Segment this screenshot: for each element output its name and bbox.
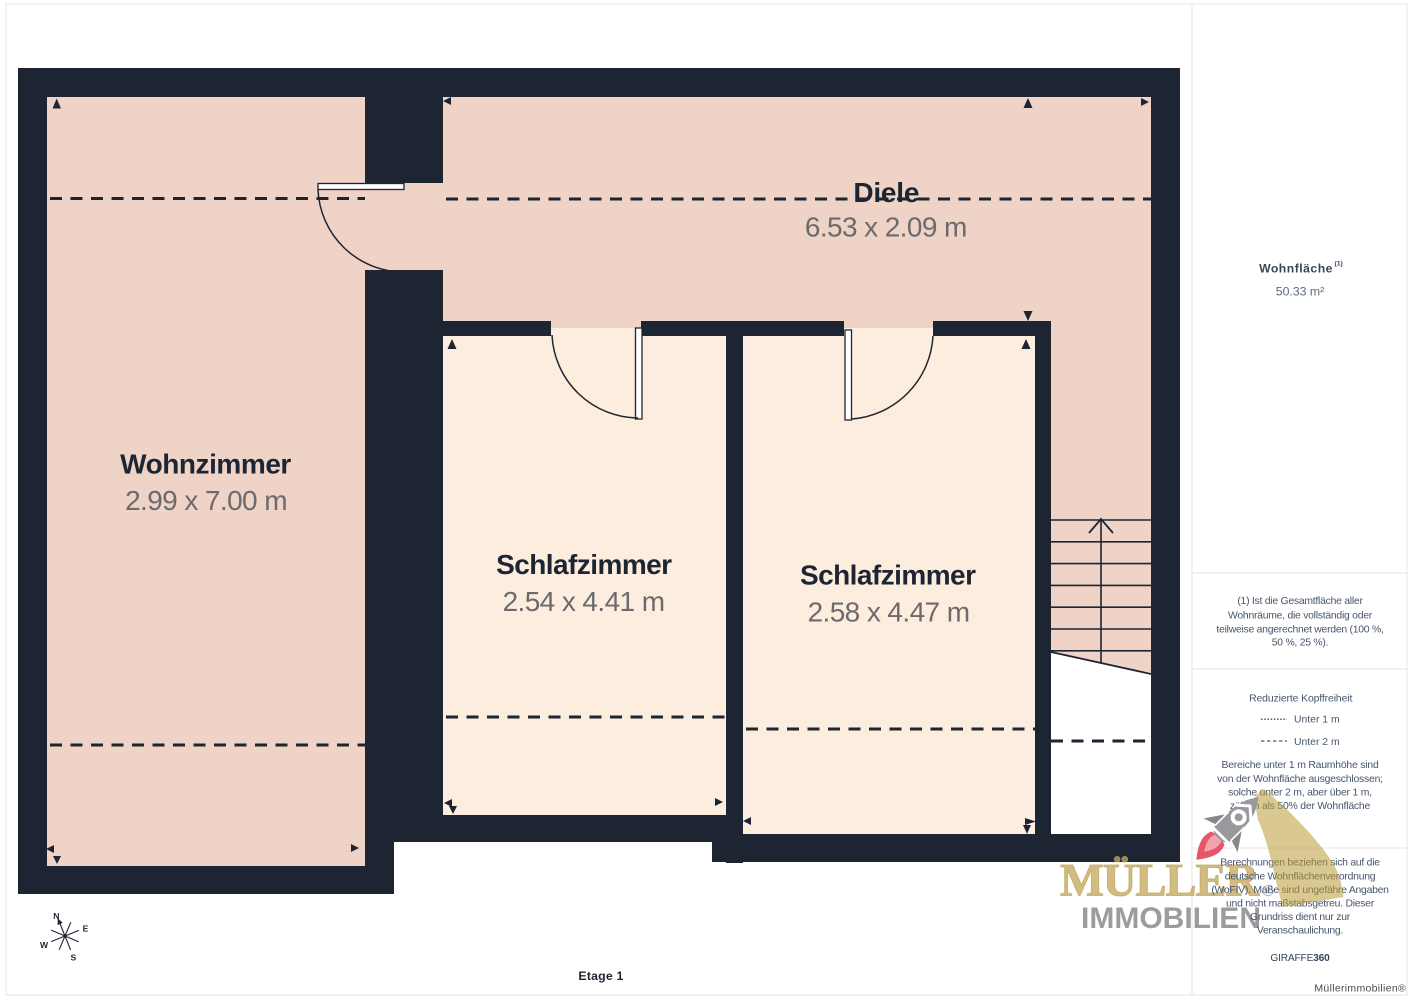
svg-text:Schlafzimmer: Schlafzimmer bbox=[496, 549, 672, 580]
svg-text:GIRAFFE360: GIRAFFE360 bbox=[1270, 953, 1330, 964]
svg-text:S: S bbox=[71, 952, 77, 962]
svg-text:2.54 x 4.41 m: 2.54 x 4.41 m bbox=[503, 586, 665, 617]
svg-text:(1): (1) bbox=[1335, 261, 1343, 268]
svg-text:Veranschaulichung.: Veranschaulichung. bbox=[1257, 925, 1343, 936]
svg-text:6.53 x 2.09 m: 6.53 x 2.09 m bbox=[805, 212, 967, 243]
svg-text:Diele: Diele bbox=[853, 177, 919, 208]
svg-text:Grundriss dient nur zur: Grundriss dient nur zur bbox=[1250, 912, 1351, 923]
svg-text:(1) Ist die Gesamtfläche aller: (1) Ist die Gesamtfläche aller bbox=[1237, 596, 1363, 607]
svg-text:von der Wohnfläche ausgeschlos: von der Wohnfläche ausgeschlossen; bbox=[1217, 774, 1383, 785]
svg-text:2.99 x 7.00 m: 2.99 x 7.00 m bbox=[125, 485, 287, 516]
svg-text:50 %, 25 %).: 50 %, 25 %). bbox=[1272, 638, 1329, 649]
svg-text:Wohnfläche: Wohnfläche bbox=[1259, 261, 1333, 275]
svg-text:Reduzierte Kopffreiheit: Reduzierte Kopffreiheit bbox=[1249, 694, 1352, 705]
svg-text:Wohnräume, die vollständig ode: Wohnräume, die vollständig oder bbox=[1228, 610, 1373, 621]
svg-text:E: E bbox=[83, 924, 89, 934]
svg-text:Unter 2 m: Unter 2 m bbox=[1294, 737, 1340, 748]
svg-text:Müllerimmobilien®: Müllerimmobilien® bbox=[1314, 983, 1406, 995]
svg-text:Etage 1: Etage 1 bbox=[578, 969, 623, 983]
svg-text:50.33 m²: 50.33 m² bbox=[1276, 285, 1325, 299]
svg-text:solche unter 2 m, aber über 1: solche unter 2 m, aber über 1 m, bbox=[1228, 788, 1372, 799]
svg-text:Bereiche unter 1 m Raumhöhe si: Bereiche unter 1 m Raumhöhe sind bbox=[1221, 760, 1378, 771]
svg-text:2.58 x 4.47 m: 2.58 x 4.47 m bbox=[808, 597, 970, 628]
svg-text:Schlafzimmer: Schlafzimmer bbox=[800, 560, 976, 591]
svg-text:W: W bbox=[40, 940, 49, 950]
svg-text:N: N bbox=[53, 911, 59, 921]
svg-text:teilweise angerechnet werden (: teilweise angerechnet werden (100 %, bbox=[1216, 624, 1383, 635]
svg-text:Unter 1 m: Unter 1 m bbox=[1294, 715, 1340, 726]
svg-text:Wohnzimmer: Wohnzimmer bbox=[120, 448, 291, 479]
